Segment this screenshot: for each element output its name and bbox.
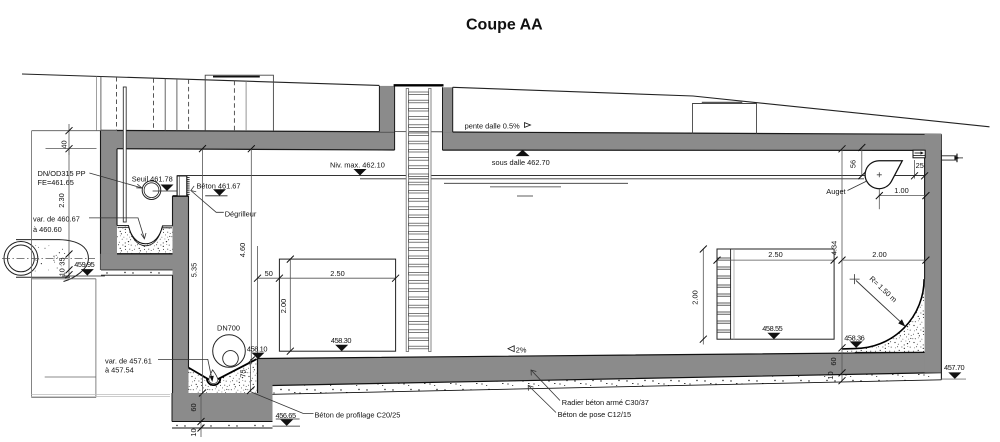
svg-text:458.30: 458.30 [331,336,351,345]
svg-text:à 457.54: à 457.54 [105,365,134,374]
svg-text:10: 10 [189,428,198,436]
svg-text:459.95: 459.95 [74,260,94,269]
svg-text:2.00: 2.00 [872,250,886,259]
svg-text:4.34: 4.34 [830,241,839,255]
svg-text:458.10: 458.10 [247,345,267,354]
svg-text:FE=461.65: FE=461.65 [38,178,74,187]
svg-text:Niv. max. 462.10: Niv. max. 462.10 [330,161,385,170]
svg-text:var. de 460.67: var. de 460.67 [33,215,80,224]
svg-text:2.00: 2.00 [691,290,700,304]
svg-text:à 460.60: à 460.60 [33,225,62,234]
svg-text:458.36: 458.36 [844,333,864,342]
svg-text:Dégrilleur: Dégrilleur [225,210,257,219]
svg-text:Coupe AA: Coupe AA [466,17,543,34]
svg-text:pente dalle 0.5%: pente dalle 0.5% [465,121,520,130]
svg-text:56: 56 [849,160,858,168]
svg-text:457.70: 457.70 [944,363,964,372]
svg-text:40: 40 [60,140,69,148]
svg-text:2%: 2% [516,345,527,354]
svg-text:DN700: DN700 [217,323,240,332]
svg-text:35: 35 [58,257,67,265]
svg-text:5.35: 5.35 [190,263,199,277]
svg-text:Seuil 461.78: Seuil 461.78 [132,175,173,184]
svg-text:10: 10 [58,268,67,276]
svg-text:Radier béton armé C30/37: Radier béton armé C30/37 [562,398,649,407]
svg-text:60: 60 [189,403,198,411]
svg-text:Auget: Auget [826,187,845,196]
svg-text:2.00: 2.00 [279,299,288,313]
svg-text:1.00: 1.00 [894,186,908,195]
svg-text:Béton de profilage C20/25: Béton de profilage C20/25 [315,411,401,420]
svg-text:4.60: 4.60 [238,243,247,257]
svg-text:75: 75 [239,369,248,377]
svg-text:10: 10 [826,371,835,379]
svg-text:2.50: 2.50 [330,269,344,278]
svg-text:sous dalle 462.70: sous dalle 462.70 [492,158,550,167]
svg-text:50: 50 [265,269,273,278]
svg-text:458.55: 458.55 [762,324,782,333]
svg-text:2.50: 2.50 [768,250,782,259]
svg-text:25: 25 [916,161,924,170]
svg-text:Béton de pose C12/15: Béton de pose C12/15 [558,410,632,419]
svg-text:60: 60 [829,357,838,365]
svg-text:var. de 457.61: var. de 457.61 [105,356,152,365]
svg-text:2.30: 2.30 [57,193,66,207]
